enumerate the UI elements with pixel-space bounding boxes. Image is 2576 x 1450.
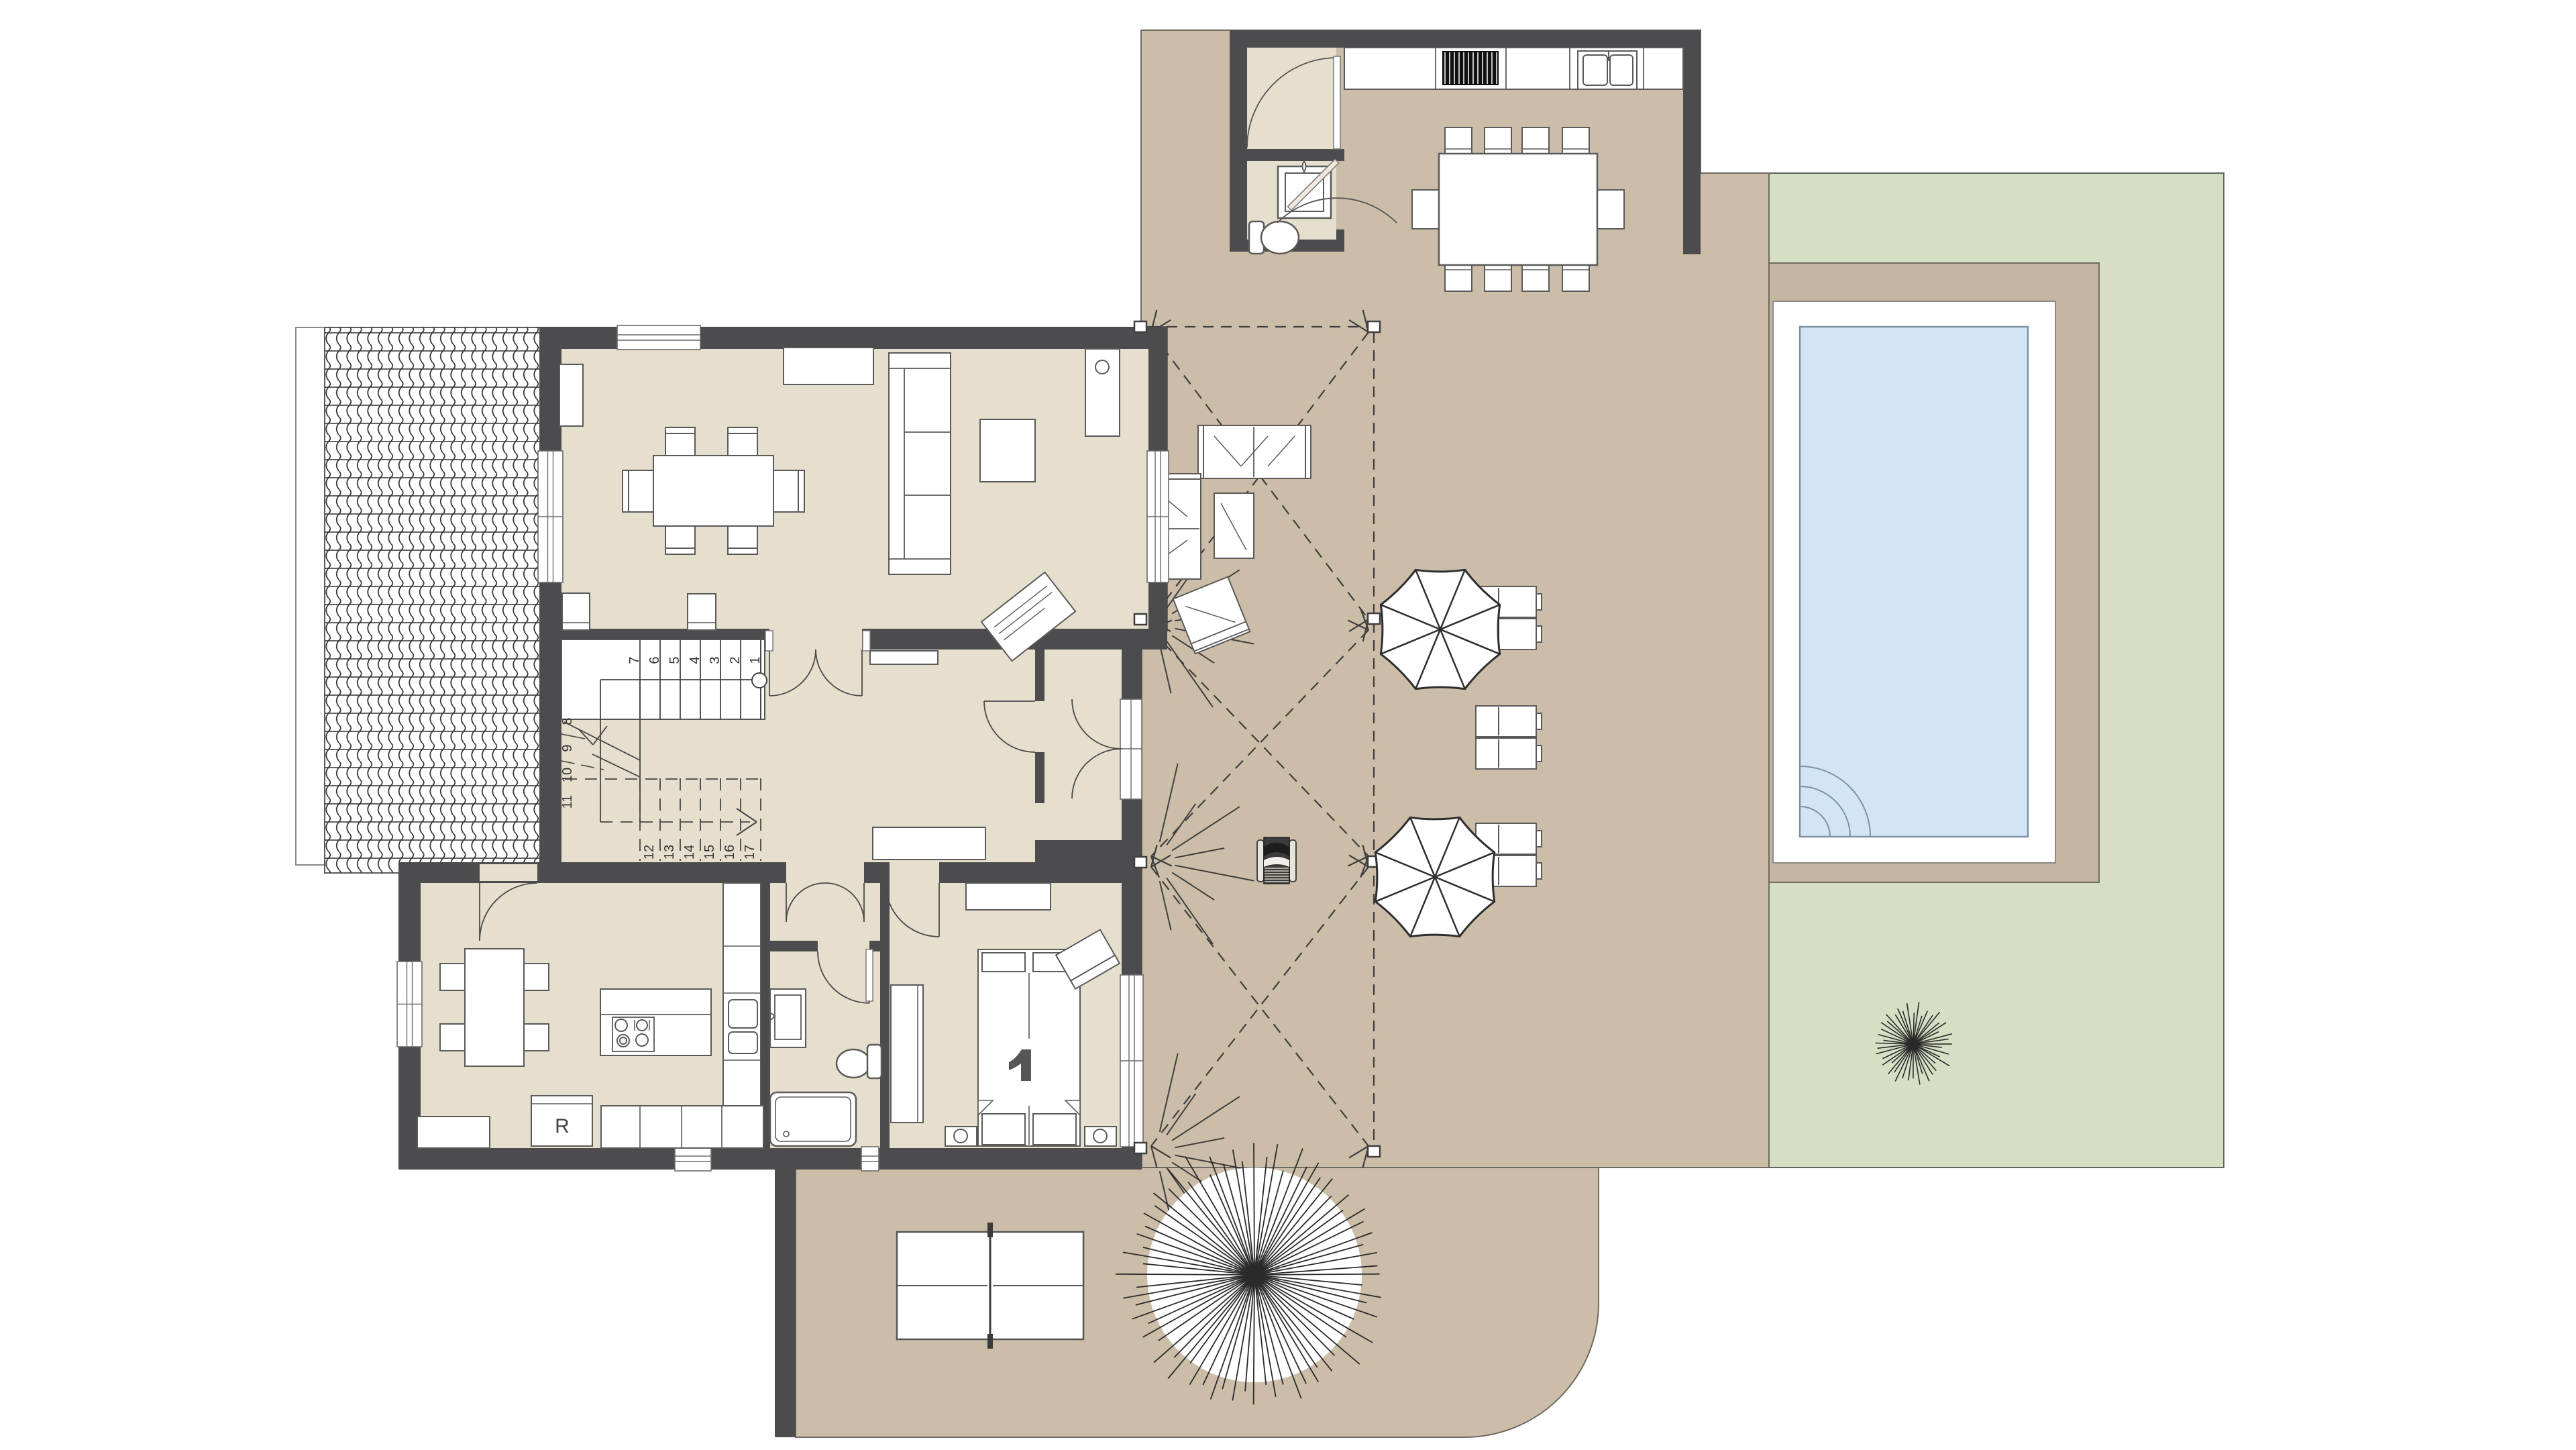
svg-text:R: R <box>555 1115 570 1137</box>
svg-text:4: 4 <box>688 656 702 664</box>
svg-text:1: 1 <box>748 656 763 664</box>
svg-text:17: 17 <box>743 845 757 860</box>
svg-text:2: 2 <box>728 656 743 664</box>
svg-text:10: 10 <box>560 768 575 782</box>
svg-text:16: 16 <box>722 845 737 860</box>
svg-text:5: 5 <box>667 656 682 664</box>
svg-text:9: 9 <box>560 744 575 752</box>
svg-text:14: 14 <box>682 845 697 860</box>
svg-text:6: 6 <box>647 656 662 664</box>
svg-text:3: 3 <box>708 656 722 664</box>
svg-text:7: 7 <box>627 656 642 664</box>
svg-text:8: 8 <box>560 717 575 725</box>
svg-text:11: 11 <box>560 795 575 809</box>
svg-text:12: 12 <box>642 845 657 860</box>
svg-text:13: 13 <box>662 845 677 860</box>
svg-text:15: 15 <box>702 845 717 860</box>
